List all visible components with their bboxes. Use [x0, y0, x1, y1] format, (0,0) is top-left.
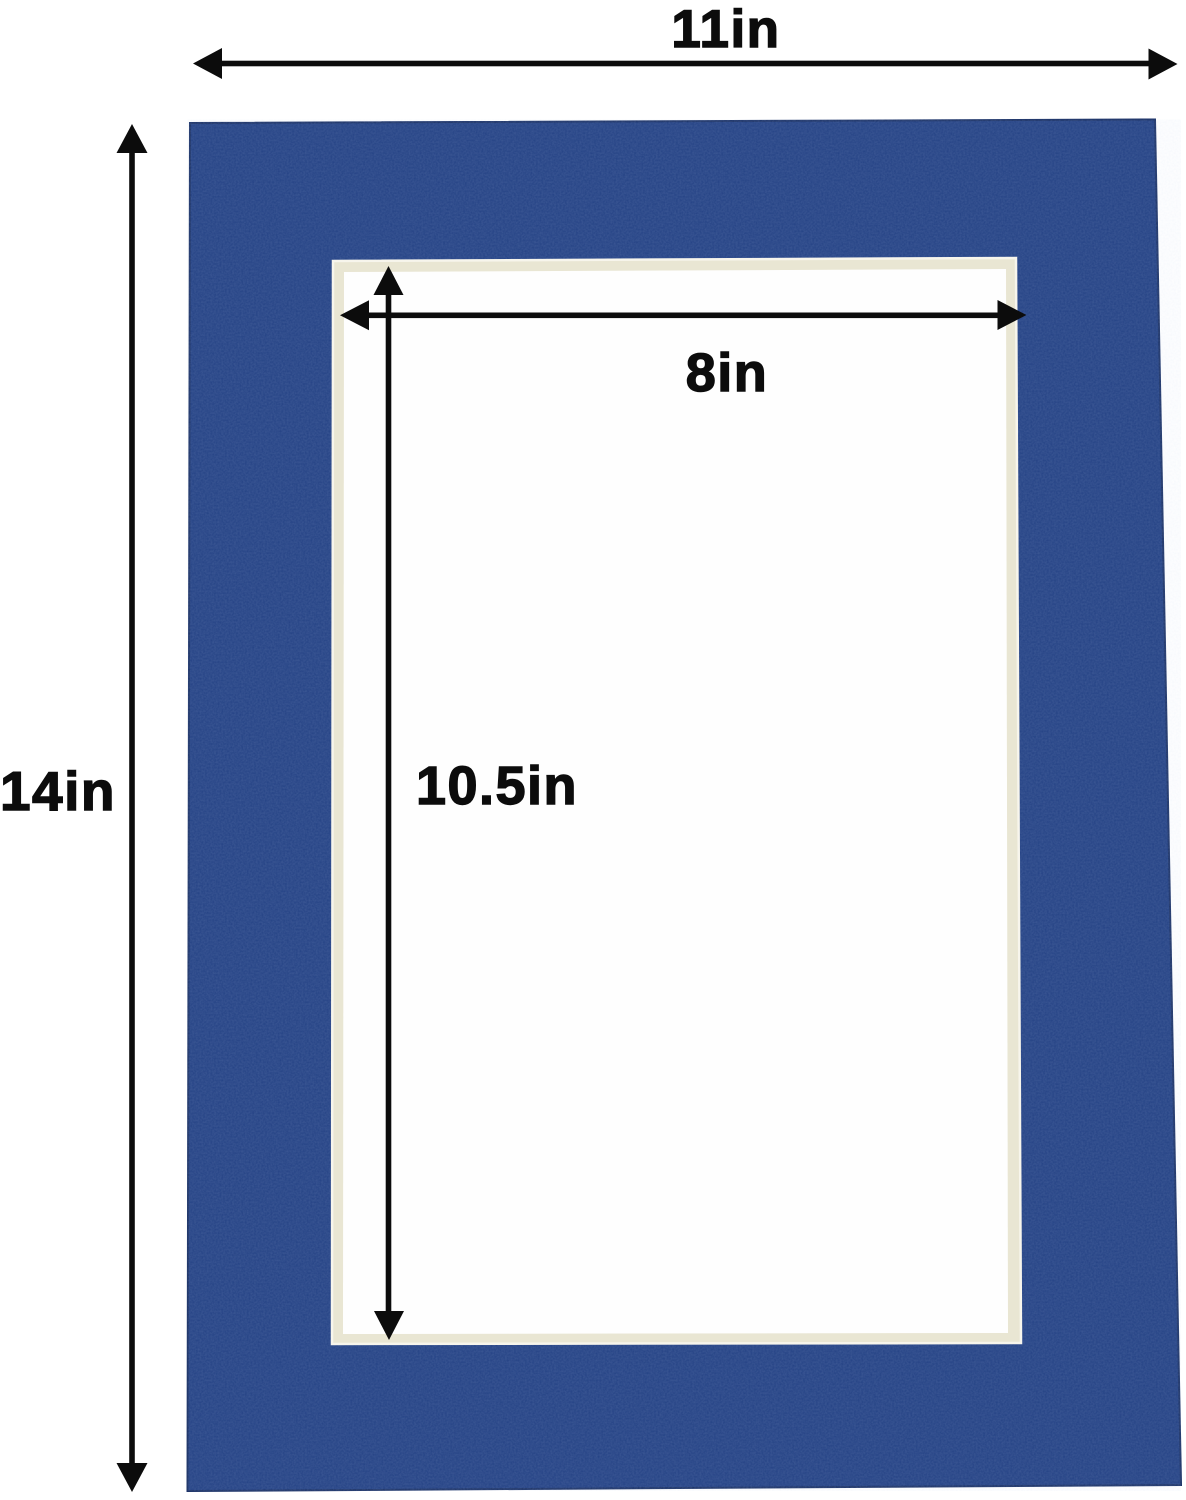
svg-text:8in: 8in — [686, 343, 769, 403]
svg-text:14in: 14in — [0, 760, 116, 822]
svg-text:10.5in: 10.5in — [416, 756, 578, 816]
svg-text:11in: 11in — [671, 0, 780, 59]
